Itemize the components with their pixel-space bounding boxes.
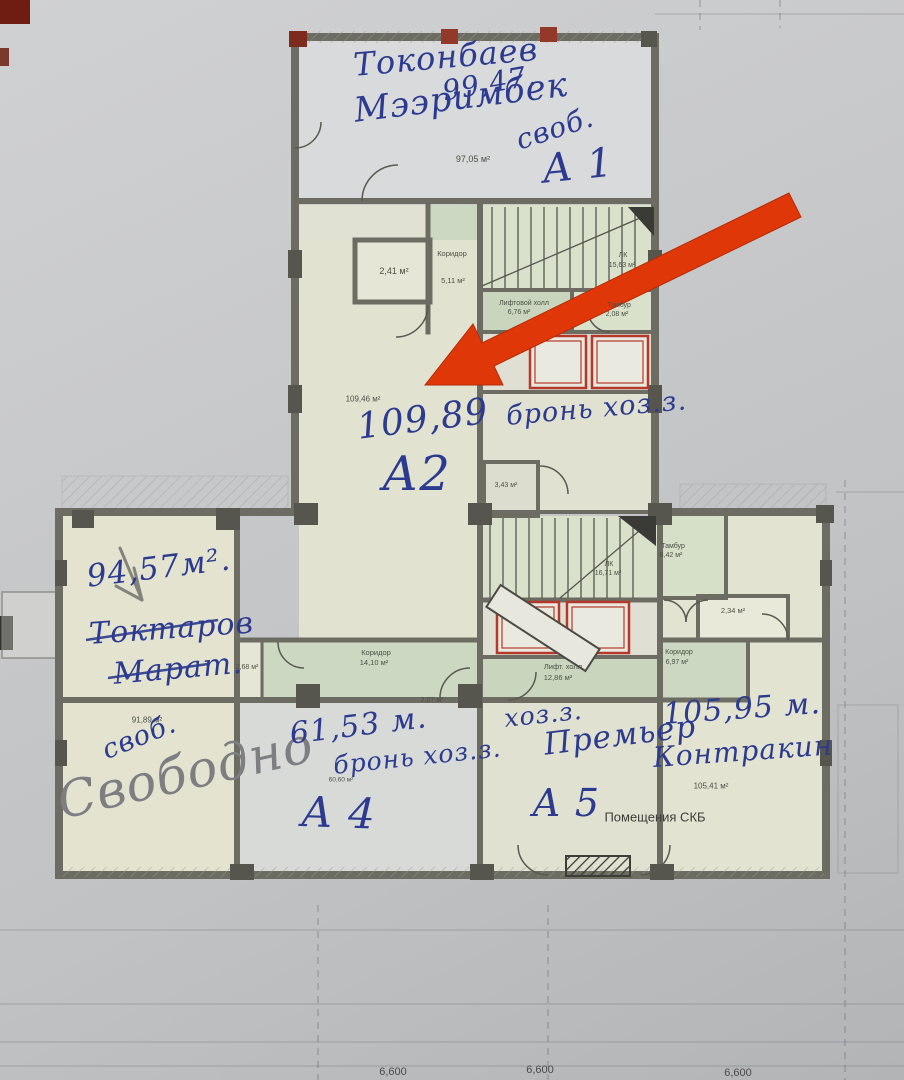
printed-stair-top: ЛК <box>619 252 628 260</box>
printed-area-r10541: 105,41 м² <box>694 783 729 792</box>
printed-tambour-top-area: 2,08 м² <box>606 311 629 319</box>
printed-corridor-right: Коридор <box>665 649 693 657</box>
ghost-sheet-rect <box>838 705 898 873</box>
printed-lift-hall-top-area: 6,76 м² <box>508 309 531 317</box>
printed-corridor-left-area: 14,10 м² <box>360 659 389 667</box>
printed-skb-label: Помещения СКБ <box>604 811 705 826</box>
printed-tambour-low: Тамбур <box>661 543 685 551</box>
hw-unit-label-a5: А 5 <box>532 782 600 825</box>
dimension-label: 6,600 <box>379 1066 407 1078</box>
printed-corridor-right-area: 6,97 м² <box>666 659 689 667</box>
hw-unit-label-a4: А 4 <box>300 788 376 838</box>
printed-area-r234: 2,34 м² <box>721 607 745 615</box>
dimension-label: 6,600 <box>526 1064 554 1076</box>
printed-area-top-room: 97,05 м² <box>456 154 490 164</box>
printed-area-r241: 2,41 м² <box>379 266 408 276</box>
photo-corner-red-tab <box>0 0 30 24</box>
printed-stair-low: ЛК <box>605 561 614 569</box>
entrance-porch <box>566 856 630 876</box>
printed-tambour-top: Тамбур <box>607 302 631 310</box>
printed-stair-top-area: 15,63 м² <box>609 262 636 270</box>
hw-unit-label-a2: А2 <box>382 448 451 502</box>
printed-lift-hall-top: Лифтовой холл <box>499 300 549 308</box>
photo-edge-red-mark <box>0 48 9 66</box>
floorplan-drawing <box>0 0 904 1080</box>
printed-corridor-left: Коридор <box>361 649 391 657</box>
printed-area-a2-room: 109,46 м² <box>346 396 381 405</box>
printed-lift-hall-low-area: 12,86 м² <box>544 674 573 682</box>
printed-corridor-top: Коридор <box>437 250 467 258</box>
printed-area-wc: 3,43 м² <box>495 482 518 490</box>
printed-corridor-top-area: 5,11 м² <box>441 277 465 285</box>
printed-stair-low-area: 16,71 м² <box>595 570 622 578</box>
printed-lift-hall-low: Лифт. холл <box>544 663 582 671</box>
hw-unit-label-a1: А 1 <box>540 141 616 193</box>
floorplan-photo: 97,05 м² 2,41 м² Коридор 5,11 м² ЛК 15,6… <box>0 0 904 1080</box>
printed-tambour-low-area: 8,42 м² <box>660 552 683 560</box>
dimension-label: 6,600 <box>724 1067 752 1079</box>
